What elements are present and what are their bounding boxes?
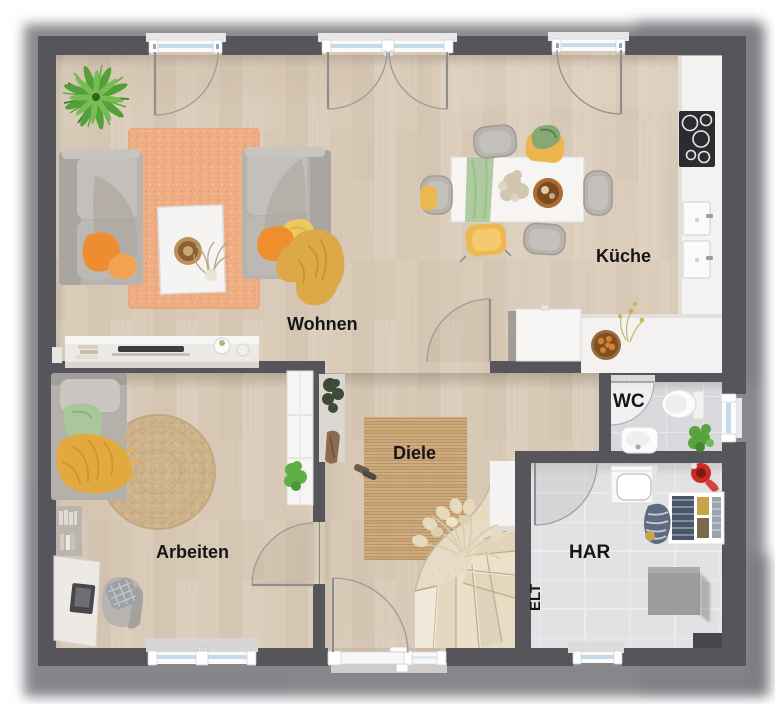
svg-text:Arbeiten: Arbeiten <box>156 542 229 562</box>
svg-text:HAR: HAR <box>569 542 610 563</box>
svg-text:WC: WC <box>613 391 645 412</box>
svg-text:Wohnen: Wohnen <box>287 314 358 334</box>
svg-text:Diele: Diele <box>393 443 436 463</box>
svg-text:ELT: ELT <box>527 584 544 611</box>
svg-text:Küche: Küche <box>596 246 651 266</box>
